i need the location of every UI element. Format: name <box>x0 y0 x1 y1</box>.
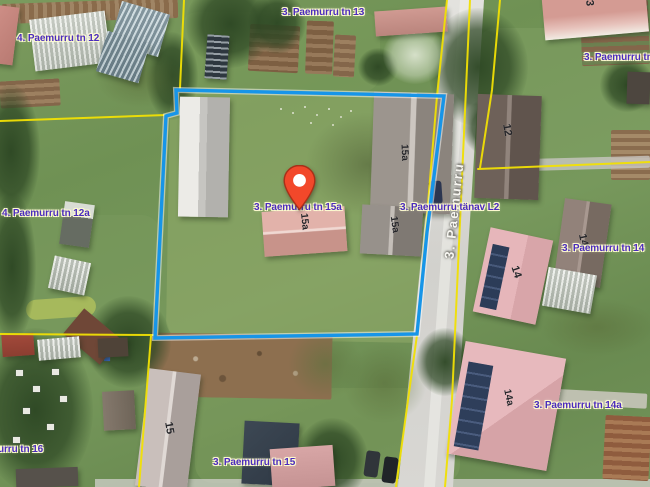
parcel-label-tn16-truncated: urru tn 16 <box>0 444 43 455</box>
building-number: 15a <box>388 215 401 233</box>
parcel-label-tn13-truncated: 3. Paemurru tn <box>584 52 650 63</box>
parcel-label-tn13: 3. Paemurru tn 13 <box>282 7 364 18</box>
parcel-label-tn15: 3. Paemurru tn 15 <box>213 457 295 468</box>
parcel-label-tn12a: 4. Paemurru tn 12a <box>2 208 90 219</box>
pin-body <box>284 166 315 210</box>
building-number: 15a <box>298 213 311 231</box>
cadastral-lines-overlay <box>0 0 650 487</box>
map-canvas[interactable]: 13 12 15a 15a 15a 14 14 14a 15 3. Paemur… <box>0 0 650 487</box>
building-number: 13 <box>583 0 596 7</box>
building-number: 12 <box>500 123 514 137</box>
parcel-label-tn14: 3. Paemurru tn 14 <box>562 243 644 254</box>
parcel-label-tanav-l2: 3. Paemurru tänav L2 <box>400 202 499 213</box>
building-number: 15a <box>399 144 411 161</box>
parcel-label-tn12: 4. Paemurru tn 12 <box>17 33 99 44</box>
parcel-label-tn14a: 3. Paemurru tn 14a <box>534 400 622 411</box>
pin-hole <box>293 174 306 187</box>
location-pin[interactable] <box>281 163 318 212</box>
cadastral-boundary-lines <box>0 0 650 487</box>
building-number: 15 <box>162 421 176 435</box>
